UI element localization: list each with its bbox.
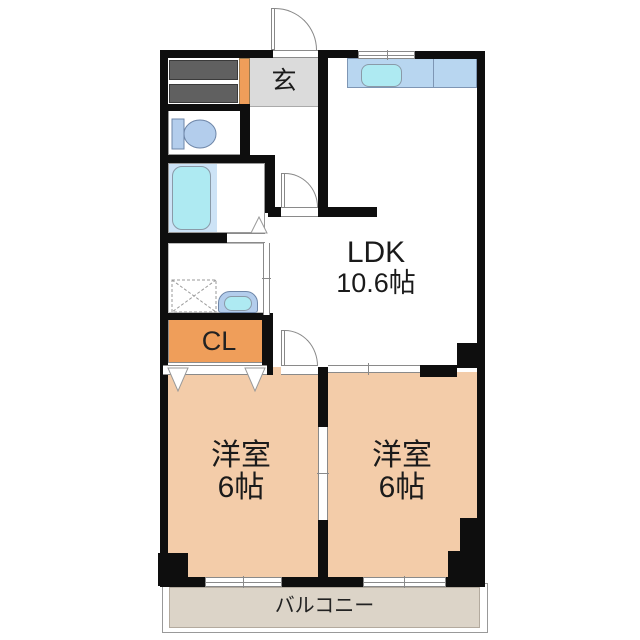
wall-bath-right xyxy=(265,155,275,213)
bedroom-left-size: 6帖 xyxy=(181,472,301,504)
balcony-window-left xyxy=(205,577,282,587)
wall-top-left xyxy=(160,50,273,58)
ldk-label: LDK 10.6帖 xyxy=(316,237,436,297)
balcony-label: バルコニー xyxy=(169,596,480,617)
wall-toilet-right xyxy=(240,104,250,157)
closet-folding-doors-icon xyxy=(163,367,267,393)
entrance-step xyxy=(239,58,250,105)
wall-hall-door-stub xyxy=(268,207,281,217)
bedroom-right-size: 6帖 xyxy=(342,472,462,504)
floorplan: CL xyxy=(0,0,640,640)
washing-machine-pan-icon xyxy=(171,279,217,313)
wall-ldk-notch xyxy=(457,343,478,368)
kitchen-window xyxy=(358,51,415,59)
kitchen-counter-divider xyxy=(433,58,434,88)
bath-door-opening xyxy=(227,233,265,243)
bedroom-right-sliding-door xyxy=(328,365,420,373)
toilet-icon xyxy=(171,116,219,152)
shoe-storage-shelf xyxy=(169,60,238,80)
bedroom-left-label: 洋室 6帖 xyxy=(181,440,301,503)
bedroom-left-name: 洋室 xyxy=(181,440,301,472)
wall-divider-top xyxy=(318,367,328,427)
bedroom-right-name: 洋室 xyxy=(342,440,462,472)
wall-bottom-b xyxy=(282,577,363,587)
wall-bath-washroom xyxy=(160,233,227,243)
wall-divider-bottom xyxy=(318,520,328,578)
balcony-window-right xyxy=(363,577,446,587)
washroom-sliding-door xyxy=(263,243,270,315)
wall-ldk-vertical xyxy=(318,55,328,217)
wall-storage-bottom xyxy=(160,104,240,111)
kitchen-sink-icon xyxy=(361,64,402,87)
shoe-storage-shelf xyxy=(169,84,238,103)
wall-bottom-right-pillar xyxy=(448,551,485,581)
wall-bottom-a xyxy=(160,577,207,587)
entrance-door-opening xyxy=(273,50,318,58)
entrance-door-swing-icon xyxy=(275,8,317,50)
bath-folding-door-icon xyxy=(250,216,268,234)
bedroom-right-label: 洋室 6帖 xyxy=(342,440,462,503)
wall-ldk-horizontal xyxy=(318,207,377,217)
hall-door-swing-icon xyxy=(285,173,318,207)
ldk-name: LDK xyxy=(316,237,436,269)
sink-basin-icon xyxy=(224,296,252,311)
wall-closet-top xyxy=(160,313,270,320)
wall-top-right xyxy=(415,51,485,59)
wall-toilet-bath xyxy=(160,155,270,163)
hall-door-opening xyxy=(281,207,318,217)
bedrooms-sliding-door xyxy=(318,427,328,520)
bedroom-left-door-swing-icon xyxy=(285,330,318,366)
wall-right xyxy=(477,52,485,587)
closet-label: CL xyxy=(168,327,270,355)
genkan-label: 玄 xyxy=(250,68,318,94)
wall-bedroom-right-top xyxy=(420,365,457,377)
ldk-size: 10.6帖 xyxy=(316,269,436,297)
bathtub-icon xyxy=(172,166,211,230)
bedroom-left-door-opening xyxy=(281,365,318,375)
